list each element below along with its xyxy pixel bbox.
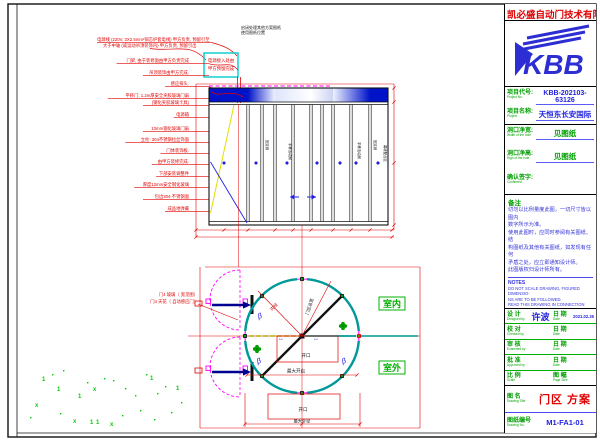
sig-label: 审 核Examined by: [507, 342, 528, 351]
survey-dot: [165, 386, 166, 387]
room-out-label: 室外: [383, 362, 401, 373]
annotation-text: 成品地弹簧: [168, 205, 190, 212]
survey-dot: [87, 382, 88, 383]
project-no-value: KBB-202103-63126: [536, 90, 594, 105]
panel-label: 幕墙配合区: [383, 145, 388, 163]
swing-diagonal-yellow: [211, 105, 235, 213]
panel-label: 平移活动扇: [288, 143, 293, 161]
power-note-line1: 电源线 (220V, 3X2.5mm²铜芯护套电线) 甲方负责, 预留引至: [97, 36, 210, 43]
survey-mark: x: [93, 387, 97, 393]
annotation-text: 电源箱: [176, 111, 190, 118]
signature-row: 批 准Approved by日 期Date: [505, 355, 596, 370]
drawing-no-label-en: Drawing No.: [507, 424, 536, 427]
survey-dot: [122, 415, 123, 416]
glass-diamond-mark: [315, 161, 319, 165]
project-no-label-en: Project No.: [507, 96, 536, 99]
top-note-line2: 使用图纸位置: [241, 29, 265, 35]
survey-mark: 1: [78, 394, 82, 400]
annotation-text: 10mm钢化玻璃门扇: [151, 125, 189, 132]
project-no-row: 项目代号:Project No. KBB-202103-63126: [505, 87, 596, 106]
panel-label: 固定扇: [373, 140, 378, 151]
project-fields: 项目代号:Project No. KBB-202103-63126 项目名称:P…: [505, 87, 596, 125]
survey-dot: [104, 378, 105, 379]
curved-wall-3: [307, 341, 359, 393]
sig-label: 设 计Designed by: [507, 312, 528, 321]
power-note-line2: 大于中轴 (或运动吊顶装饰内) 甲方负责, 预留引出: [103, 42, 197, 49]
survey-dot: [125, 388, 126, 389]
swing-diagonal-blue: [211, 162, 248, 223]
sig-label: 比 例Scale: [507, 373, 528, 382]
band-bay1: [209, 88, 248, 102]
room-in-label: 室内: [383, 298, 401, 309]
max-outer-label: 最大外径: [294, 418, 311, 425]
glass-diamond-mark: [354, 161, 358, 165]
survey-dot: [60, 413, 61, 414]
signature-row: 设 计Designed by许波日 期Date2021.02.26: [505, 309, 596, 324]
glass-diamond-mark: [222, 161, 226, 165]
band-bay6: [370, 88, 388, 102]
opening-height-label-en: High of the hole: [507, 157, 536, 160]
drawing-title-row: 图 名Drawing Title 门区 方案: [505, 386, 596, 413]
opening-height-value: 见图纸: [536, 151, 594, 163]
drawing-title-value: 门区 方案: [536, 391, 594, 407]
node-dot: [244, 335, 246, 337]
band-bay2: [248, 88, 275, 102]
survey-mark: 1: [90, 420, 94, 426]
drawing-title-label-en: Drawing Title: [507, 400, 536, 403]
mullions: [247, 105, 371, 222]
sig-value: 许波: [528, 310, 553, 323]
kbb-logo: KBB: [509, 24, 593, 84]
radius-line: [258, 291, 302, 336]
sig-date-label: 日 期Date: [553, 312, 570, 321]
signature-rows: 设 计Designed by许波日 期Date2021.02.26校 对Chec…: [505, 309, 596, 386]
project-name-row: 项目名称:Project 天恒东长安国际: [505, 106, 596, 125]
survey-dot: [157, 393, 158, 394]
annotation-text: 感应探头.: [171, 80, 189, 87]
swing-arc-2: [210, 337, 240, 397]
survey-mark: 1: [176, 386, 180, 392]
band-bay4: [311, 88, 333, 102]
opening-label-2: 开口: [299, 407, 308, 413]
annotation-text: 由甲方装修完成.: [158, 158, 189, 165]
survey-mark: x: [35, 403, 39, 409]
company-name: 凯必盛自动门技术有限公司: [505, 4, 596, 21]
sig-date-label: 日 期Date: [553, 327, 570, 336]
notes-section: 备注 切勿以比例量度此图，一切尺寸皆以图内 数字所示为准。 使用此图时，应同时参…: [505, 195, 596, 309]
survey-dot: [63, 370, 64, 371]
survey-scatter: 111xxx11x11: [30, 370, 182, 428]
power-callout-line2: 甲方预留完成: [208, 65, 235, 72]
drawing-no-row: 图纸编号Drawing No. M1-FA1-01: [505, 413, 596, 432]
sig-date-label: 图 幅Page Size: [553, 373, 570, 382]
node-dot: [341, 295, 343, 297]
logo-section: KBB: [505, 21, 596, 87]
sig-date-value: 2021.02.26: [570, 314, 594, 319]
inner-dia-label: 内径: [268, 301, 280, 313]
survey-dot: [135, 395, 136, 396]
survey-dot: [146, 374, 147, 375]
survey-dot: [140, 410, 141, 411]
annotation-text: 厚度12mm安全钢化玻璃: [143, 181, 190, 188]
survey-dot: [113, 380, 114, 381]
survey-mark: 1: [42, 377, 46, 383]
anchor-red-2: [195, 368, 202, 373]
glass-diamond-mark: [376, 161, 380, 165]
survey-mark: 1: [57, 387, 61, 393]
beta-symbol-3: β: [339, 356, 348, 367]
project-name-label-en: Project: [507, 115, 536, 118]
sig-date-label: 日 期Date: [553, 342, 570, 351]
drawing-no-value: M1-FA1-01: [536, 418, 594, 427]
glass-diamond-mark: [338, 161, 342, 165]
sig-date-label: 日 期Date: [553, 358, 570, 367]
sig-label: 校 对Checked by: [507, 327, 528, 336]
notes-en-body: DO NOT SCALE DRAWING, FIGURED DIMENSIO- …: [508, 286, 593, 309]
survey-mark: x: [110, 422, 114, 428]
slide-arrow-right-head: [312, 194, 317, 199]
band-bay5: [333, 88, 370, 102]
panel-vertical-labels: 固定扇平移活动扇平移活动扇固定扇幕墙配合区: [265, 140, 388, 163]
confirm-value: [536, 175, 594, 184]
annotation-text: 门体装饰板.: [166, 147, 189, 154]
signature-row: 比 例Scale图 幅Page Size: [505, 371, 596, 385]
survey-dot: [52, 374, 53, 375]
survey-mark: 1: [150, 376, 154, 382]
survey-dot: [181, 402, 182, 403]
glass-diamond-mark: [285, 161, 289, 165]
signature-row: 校 对Checked by日 期Date: [505, 324, 596, 339]
swing-arc-1: [210, 270, 240, 330]
annotation-text: 包边304-不锈钢面: [155, 193, 190, 200]
notes-cn-body: 切勿以比例量度此图，一切尺寸皆以图内 数字所示为准。 使用此图时，应同时参阅有关…: [508, 207, 593, 275]
survey-dot: [154, 419, 155, 420]
confirm-label-en: Confirmed: [507, 181, 536, 184]
confirm-row: 确认签字:Confirmed: [505, 172, 596, 193]
survey-dot: [30, 417, 31, 418]
title-block: 凯必盛自动门技术有限公司 KBB 项目代号:Project No. KBB-20…: [504, 4, 596, 433]
plan-slide-arrow-2: ↔: [313, 336, 319, 342]
drawing-sheet: 启闭处理其他方案图纸 使用图纸位置 电源线 (220V, 3X2.5mm²铜芯护…: [0, 0, 600, 443]
notes-divider: [508, 277, 593, 278]
signature-row: 审 核Examined by日 期Date: [505, 340, 596, 355]
opening-fields: 洞口净宽:Width of the hole 见图纸 洞口净高:High of …: [505, 125, 596, 195]
annotation-text: (钢化夹胶玻璃卡具): [152, 99, 190, 106]
annotation-text: 吊顶装饰由甲方完成.: [149, 69, 189, 76]
glass-diamond-mark: [254, 161, 258, 165]
logo-text: KBB: [523, 49, 584, 80]
sig-label: 批 准Approved by: [507, 358, 528, 367]
annotation-text: 立柱: 304不锈钢拉丝饰面: [141, 136, 190, 143]
door4-leader: [198, 304, 238, 320]
opening-label-1: 开口: [302, 353, 311, 359]
survey-mark: x: [73, 419, 77, 425]
survey-mark: 1: [96, 420, 100, 426]
plan-slide-arrow-1: ↔: [278, 336, 284, 342]
glass-marks: [222, 161, 380, 165]
node-dot: [358, 335, 360, 337]
left-annotations: 门梁, 由于装修面由甲方负责完成吊顶装饰由甲方完成.感应探头.平移门: 1.2m…: [108, 57, 209, 212]
entry-arrow-1-head: [243, 301, 251, 308]
opening-height-row: 洞口净高:High of the hole 见图纸: [505, 148, 596, 172]
beta-symbol-2: β: [254, 356, 263, 367]
opening-box-1: [277, 336, 338, 362]
door4-label-2: 门4 天花（ 自动感应门）: [150, 298, 198, 305]
power-note-leader: [212, 43, 237, 56]
opening-width-label-en: Width of the hole: [507, 134, 536, 137]
annotation-text: 下部安装调整件: [159, 170, 190, 177]
max-open-label: 最大开启: [287, 368, 305, 375]
slide-arrow-left-head: [290, 194, 295, 199]
panel-label: 固定扇: [265, 140, 270, 151]
annotation-text: 平移门: 1.2m厚安全夹胶玻璃门扇: [125, 92, 189, 99]
project-name-value: 天恒东长安国际: [536, 109, 594, 121]
beta-symbol-1: β: [255, 311, 264, 322]
survey-dot: [171, 412, 172, 413]
opening-width-value: 见图纸: [536, 128, 594, 140]
opening-width-row: 洞口净宽:Width of the hole 见图纸: [505, 125, 596, 148]
node-dot: [301, 278, 303, 280]
annotation-text: 门梁, 由于装修面由甲方负责完成: [126, 57, 189, 64]
panel-label: 平移活动扇: [357, 142, 362, 160]
notes-cn-title: 备注: [508, 197, 593, 207]
door4-label-1: 门4 玻璃（ 宽见图）: [159, 291, 198, 298]
band-bay3: [275, 88, 311, 102]
power-callout-line1: 电源接入处由: [208, 57, 234, 64]
